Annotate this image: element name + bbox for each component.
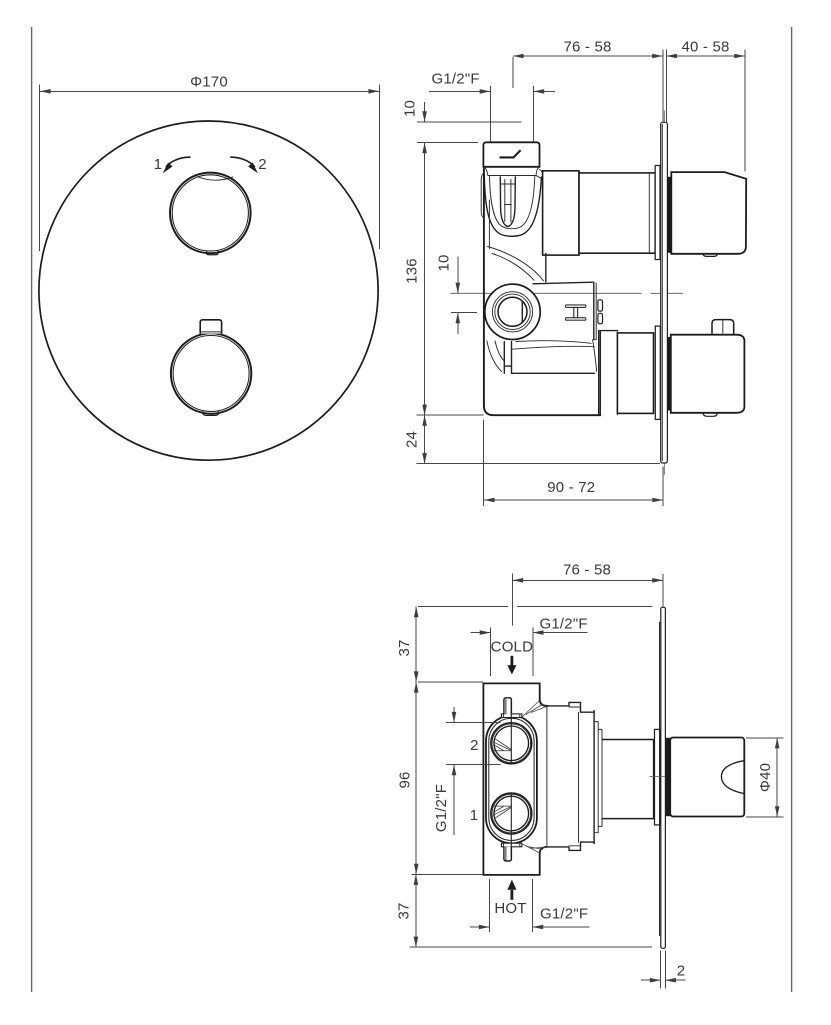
svg-text:2: 2 (470, 737, 479, 754)
svg-text:76 - 58: 76 - 58 (563, 562, 611, 579)
svg-text:G1/2"F: G1/2"F (540, 616, 588, 633)
svg-text:G1/2"F: G1/2"F (433, 784, 450, 832)
svg-text:HOT: HOT (494, 900, 526, 917)
svg-text:2: 2 (258, 156, 267, 173)
svg-text:37: 37 (396, 902, 413, 919)
svg-text:24: 24 (404, 431, 421, 448)
svg-text:136: 136 (404, 258, 421, 284)
svg-text:96: 96 (397, 771, 414, 788)
svg-text:37: 37 (396, 639, 413, 656)
svg-text:2: 2 (677, 963, 686, 980)
svg-text:40 - 58: 40 - 58 (681, 39, 729, 56)
svg-text:Φ170: Φ170 (190, 74, 228, 91)
svg-text:Φ40: Φ40 (757, 763, 774, 792)
svg-text:10: 10 (436, 254, 453, 271)
svg-text:10: 10 (402, 100, 419, 117)
svg-text:G1/2"F: G1/2"F (540, 906, 588, 923)
svg-text:COLD: COLD (491, 639, 533, 656)
svg-text:1: 1 (154, 156, 163, 173)
svg-text:G1/2"F: G1/2"F (432, 71, 480, 88)
svg-text:90 - 72: 90 - 72 (547, 479, 595, 496)
svg-text:76 - 58: 76 - 58 (563, 39, 611, 56)
svg-text:1: 1 (470, 807, 479, 824)
